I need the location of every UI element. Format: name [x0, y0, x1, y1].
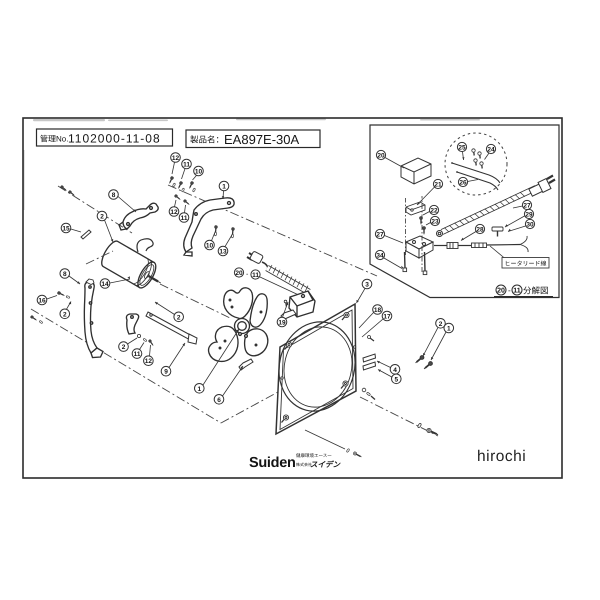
svg-text:2: 2 [63, 311, 67, 318]
svg-text:12: 12 [172, 155, 180, 162]
svg-text:5: 5 [394, 376, 398, 383]
svg-text:25: 25 [458, 144, 466, 151]
svg-text:12: 12 [145, 358, 153, 365]
svg-text:EA897E-30A: EA897E-30A [224, 132, 299, 147]
svg-text:1: 1 [222, 184, 226, 191]
svg-text:9: 9 [164, 369, 168, 376]
svg-text:Suiden: Suiden [249, 455, 296, 471]
svg-text:16: 16 [38, 298, 46, 305]
svg-text:20: 20 [497, 288, 505, 295]
svg-text:17: 17 [383, 314, 391, 321]
svg-text:27: 27 [523, 202, 531, 209]
svg-text:製品名：: 製品名： [190, 135, 224, 145]
svg-text:24: 24 [487, 146, 495, 153]
svg-text:20: 20 [377, 152, 385, 159]
svg-text:4: 4 [393, 367, 397, 374]
svg-text:2: 2 [177, 314, 181, 321]
svg-text:1: 1 [447, 326, 451, 333]
svg-text:19: 19 [278, 320, 286, 327]
svg-text:3: 3 [365, 282, 369, 289]
svg-text:ヒータリード線: ヒータリード線 [505, 259, 547, 267]
svg-text:20: 20 [235, 270, 243, 277]
svg-text:健康環境エースー: 健康環境エースー [296, 453, 332, 458]
svg-text:11: 11 [181, 215, 188, 222]
svg-text:29: 29 [525, 211, 533, 218]
svg-text:27: 27 [376, 231, 384, 238]
svg-text:10: 10 [195, 169, 203, 176]
svg-text:30: 30 [526, 221, 534, 228]
svg-text:10: 10 [206, 243, 214, 250]
svg-text:22: 22 [430, 207, 438, 214]
svg-text:23: 23 [431, 218, 439, 225]
svg-text:スイデン: スイデン [310, 460, 341, 469]
svg-text:11: 11 [252, 272, 259, 279]
svg-text:1: 1 [197, 386, 201, 393]
svg-text:-: - [508, 286, 511, 295]
svg-text:28: 28 [476, 226, 484, 233]
svg-text:8: 8 [112, 192, 116, 199]
svg-text:11: 11 [183, 162, 190, 169]
svg-text:8: 8 [63, 271, 67, 278]
svg-text:1102000-11-08: 1102000-11-08 [68, 132, 161, 146]
svg-text:11: 11 [513, 288, 521, 295]
svg-text:2: 2 [100, 214, 104, 221]
svg-text:hirochi: hirochi [477, 448, 526, 465]
svg-text:14: 14 [101, 281, 109, 288]
svg-text:分解図: 分解図 [523, 286, 549, 296]
svg-text:6: 6 [217, 397, 221, 404]
svg-text:34: 34 [376, 252, 384, 259]
svg-text:管理No.: 管理No. [40, 135, 68, 144]
svg-text:11: 11 [134, 351, 141, 358]
svg-text:21: 21 [434, 181, 442, 188]
svg-text:18: 18 [374, 307, 382, 314]
svg-text:12: 12 [170, 209, 178, 216]
svg-text:2: 2 [439, 321, 443, 328]
svg-text:26: 26 [459, 179, 467, 186]
svg-text:13: 13 [219, 249, 227, 256]
svg-text:2: 2 [122, 344, 126, 351]
svg-text:15: 15 [62, 226, 70, 233]
